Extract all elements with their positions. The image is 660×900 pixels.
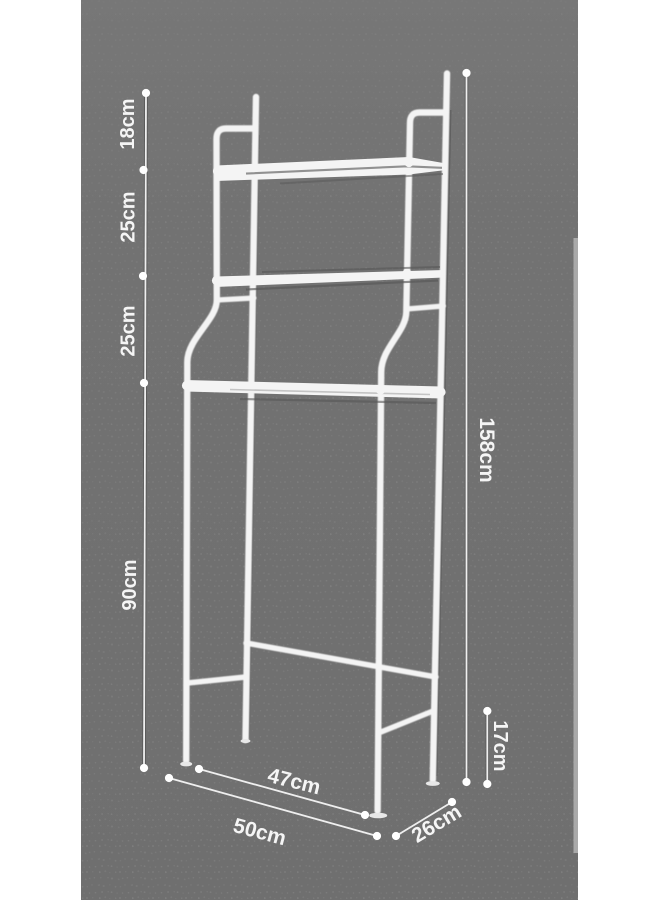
svg-text:158cm: 158cm xyxy=(475,417,498,482)
svg-text:90cm: 90cm xyxy=(119,559,141,610)
svg-text:25cm: 25cm xyxy=(118,191,140,242)
svg-text:17cm: 17cm xyxy=(489,720,511,771)
svg-text:18cm: 18cm xyxy=(117,98,139,149)
svg-text:25cm: 25cm xyxy=(118,305,140,356)
